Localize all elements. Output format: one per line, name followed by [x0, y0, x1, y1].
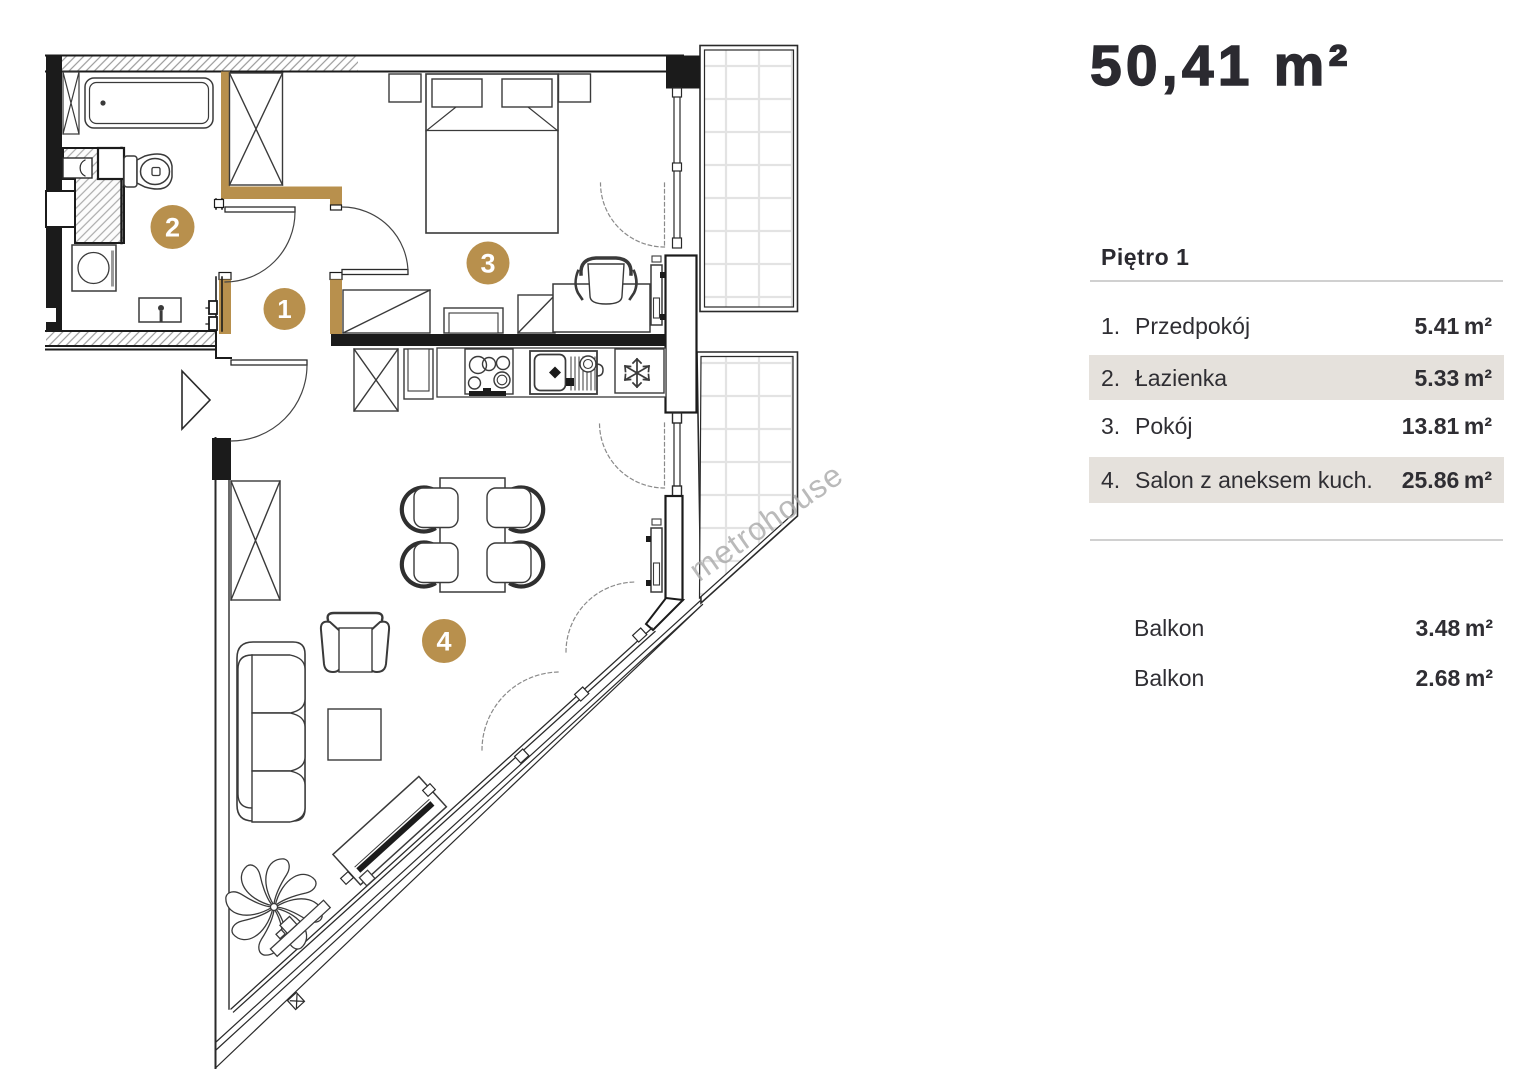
svg-text:2: 2: [165, 213, 180, 243]
svg-text:4: 4: [436, 627, 451, 657]
svg-text:1: 1: [277, 294, 291, 324]
svg-text:Łazienka: Łazienka: [1135, 365, 1227, 391]
svg-text:4.: 4.: [1101, 467, 1120, 493]
svg-text:3: 3: [480, 249, 495, 279]
svg-text:5.33 m²: 5.33 m²: [1415, 365, 1493, 391]
svg-text:25.86 m²: 25.86 m²: [1402, 467, 1493, 493]
svg-text:3.: 3.: [1101, 413, 1120, 439]
svg-text:Przedpokój: Przedpokój: [1135, 313, 1250, 339]
svg-text:50,41 m²: 50,41 m²: [1090, 34, 1352, 98]
svg-text:Piętro 1: Piętro 1: [1101, 244, 1189, 270]
svg-text:3.48 m²: 3.48 m²: [1416, 615, 1494, 641]
svg-text:13.81 m²: 13.81 m²: [1402, 413, 1493, 439]
svg-text:Balkon: Balkon: [1134, 615, 1204, 641]
svg-text:1.: 1.: [1101, 313, 1120, 339]
svg-text:Pokój: Pokój: [1135, 413, 1193, 439]
svg-text:2.: 2.: [1101, 365, 1120, 391]
svg-text:2.68 m²: 2.68 m²: [1416, 665, 1494, 691]
svg-text:Salon z aneksem kuch.: Salon z aneksem kuch.: [1135, 467, 1373, 493]
svg-text:5.41 m²: 5.41 m²: [1415, 313, 1493, 339]
svg-text:Balkon: Balkon: [1134, 665, 1204, 691]
